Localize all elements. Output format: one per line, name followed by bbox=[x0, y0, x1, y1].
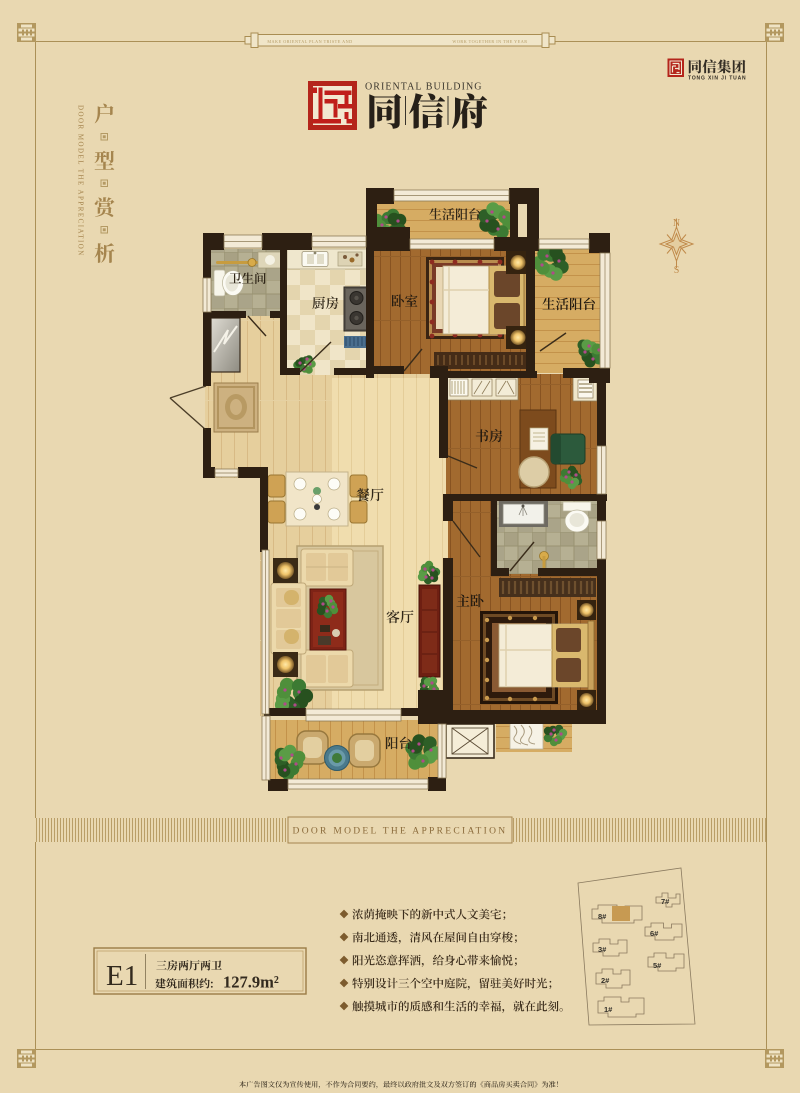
svg-text:E1: E1 bbox=[106, 960, 138, 992]
svg-text:N: N bbox=[673, 218, 680, 229]
svg-text:WORK TOGETHER IN THE YEAR: WORK TOGETHER IN THE YEAR bbox=[452, 39, 527, 44]
svg-text:127.9m²: 127.9m² bbox=[223, 973, 279, 992]
svg-text:8#: 8# bbox=[598, 912, 607, 921]
svg-text:3#: 3# bbox=[598, 945, 607, 954]
svg-text:7#: 7# bbox=[661, 897, 670, 906]
svg-text:1#: 1# bbox=[604, 1005, 613, 1014]
svg-text:TONG XIN JI TUAN: TONG XIN JI TUAN bbox=[688, 76, 747, 82]
svg-text:2#: 2# bbox=[601, 976, 610, 985]
svg-text:6#: 6# bbox=[650, 929, 659, 938]
svg-text:ORIENTAL BUILDING: ORIENTAL BUILDING bbox=[365, 82, 483, 93]
svg-text:MAKE ORIENTAL PLAN TRISTE AND: MAKE ORIENTAL PLAN TRISTE AND bbox=[267, 39, 352, 44]
svg-text:DOOR MODEL THE APPRECIATION: DOOR MODEL THE APPRECIATION bbox=[77, 105, 85, 257]
svg-text:DOOR MODEL THE APPRECIATION: DOOR MODEL THE APPRECIATION bbox=[293, 827, 508, 837]
svg-text:5#: 5# bbox=[653, 961, 662, 970]
svg-text:S: S bbox=[674, 265, 680, 276]
